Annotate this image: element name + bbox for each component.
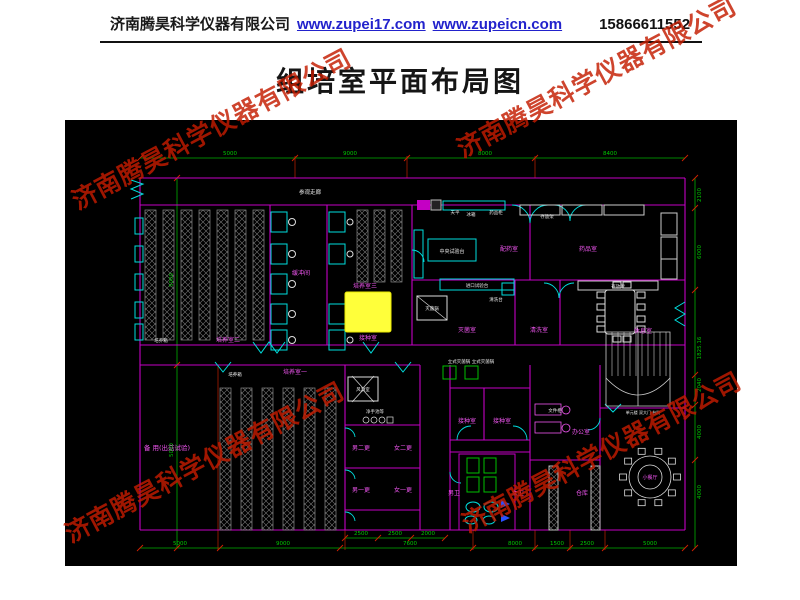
room-label: 清洗台 (489, 296, 503, 303)
floor-plan-drawing: 参观走廊培养箱培养室二缓冲间培养室三接种室培养箱培养室一备 用(出菇试验)风淋室… (65, 120, 737, 566)
dimension-label: 2500 (580, 541, 594, 547)
room-label: 接种室 (359, 334, 377, 342)
room-label: 进口试验台 (466, 282, 489, 289)
rack-column (241, 388, 252, 530)
room-label: 接种室 (458, 417, 476, 425)
room-label: 男卫 (448, 490, 460, 497)
truss-column (591, 466, 600, 530)
room-label: 培养箱 (154, 337, 168, 344)
truss-column (549, 466, 558, 530)
dimension-label: 2100 (697, 188, 703, 202)
room-label: 男一更 (352, 487, 370, 494)
page-title: 组培室平面布局图 (0, 60, 800, 100)
room-label: 办公室 (572, 428, 590, 436)
dimension-label: 5000 (173, 541, 187, 547)
room-label: 培养室二 (216, 336, 240, 344)
room-label: 女一更 (394, 486, 412, 494)
dimension-label: 9000 (276, 541, 290, 547)
rack-column (217, 210, 228, 340)
dimension-label: 5000 (169, 443, 175, 457)
rack-column (181, 210, 192, 340)
room-label: 培养室一 (283, 368, 307, 376)
yellow-highlight-box (345, 292, 391, 332)
rack-column (283, 388, 294, 530)
room-label: 备 用(出菇试验) (144, 443, 190, 452)
dimension-label: 8000 (478, 151, 492, 157)
rack-column (374, 210, 385, 282)
room-label: 小餐厅 (642, 474, 657, 481)
room-label: 药品室 (579, 245, 597, 253)
floor-plan-canvas: 参观走廊培养箱培养室二缓冲间培养室三接种室培养箱培养室一备 用(出菇试验)风淋室… (65, 120, 737, 566)
dimension-label: 6000 (697, 245, 703, 259)
dimension-label: 5000 (643, 541, 657, 547)
balance-table (417, 200, 430, 210)
dimension-label: 7600 (403, 541, 417, 547)
room-label: 缓冲间 (292, 269, 310, 277)
room-label: 单元楼 双大门 台阶 (626, 409, 661, 415)
company-name: 济南腾昊科学仪器有限公司 (110, 13, 290, 34)
dimension-label: 2500 (388, 531, 402, 537)
dimension-label: 2040 (697, 378, 703, 392)
phone-number: 15866611552 (599, 16, 690, 33)
dimension-label: 4000 (697, 485, 703, 499)
dimension-label: 2000 (421, 531, 435, 537)
room-label: 女二更 (394, 444, 412, 452)
room-label: 立式灭菌锅 立式灭菌锅 (448, 358, 495, 365)
dimension-label: 5000 (223, 151, 237, 157)
room-label: 风淋室 (356, 386, 370, 393)
header: 济南腾昊科学仪器有限公司 www.zupei17.com www.zupeicn… (0, 13, 800, 34)
dimension-label: 1500 (550, 541, 564, 547)
room-label: 文件柜 (548, 407, 562, 414)
room-label: 培养室三 (353, 282, 377, 290)
rack-column (235, 210, 246, 340)
rack-column (325, 388, 336, 530)
room-label: 存放架 (611, 283, 625, 290)
dimension-label: 8400 (603, 151, 617, 157)
room-label: 仓库 (576, 489, 588, 497)
fridge-box (431, 200, 441, 210)
dimension-label: 8000 (508, 541, 522, 547)
dimension-label: 5000 (169, 273, 175, 287)
room-label: 女卫 (512, 489, 524, 497)
rack-column (145, 210, 156, 340)
dimension-label: 2500 (354, 531, 368, 537)
link-zupei17[interactable]: www.zupei17.com (297, 16, 426, 33)
room-label: 中央试验台 (439, 248, 464, 255)
header-divider (100, 41, 702, 43)
room-label: 参观走廊 (299, 188, 322, 196)
room-label: 接种室 (493, 417, 511, 425)
rack-column (199, 210, 210, 340)
dimension-label: 1825.16 (697, 336, 703, 359)
rack-column (253, 210, 264, 340)
rack-column (262, 388, 273, 530)
room-label: 配药室 (500, 245, 518, 253)
room-label: 净手池等 (366, 408, 384, 415)
room-label: 灭菌锅 (425, 305, 439, 312)
room-label: 冰箱 (467, 211, 476, 218)
room-label: 休息室 (634, 327, 652, 335)
room-label: 天平 (451, 210, 460, 216)
dimension-label: 4000 (697, 425, 703, 439)
room-label: 灭菌室 (458, 326, 476, 334)
room-label: 男二更 (352, 445, 370, 452)
room-label: 培养箱 (228, 371, 242, 378)
rack-column (357, 210, 368, 282)
rack-column (220, 388, 231, 530)
dimension-label: 9000 (343, 151, 357, 157)
rack-column (391, 210, 402, 282)
link-zupeicn[interactable]: www.zupeicn.com (433, 16, 562, 33)
page: 济南腾昊科学仪器有限公司 www.zupei17.com www.zupeicn… (0, 0, 800, 600)
rack-column (304, 388, 315, 530)
room-label: 药品柜 (489, 209, 503, 216)
room-label: 清洗室 (530, 326, 548, 334)
room-label: 存放架 (540, 213, 554, 220)
